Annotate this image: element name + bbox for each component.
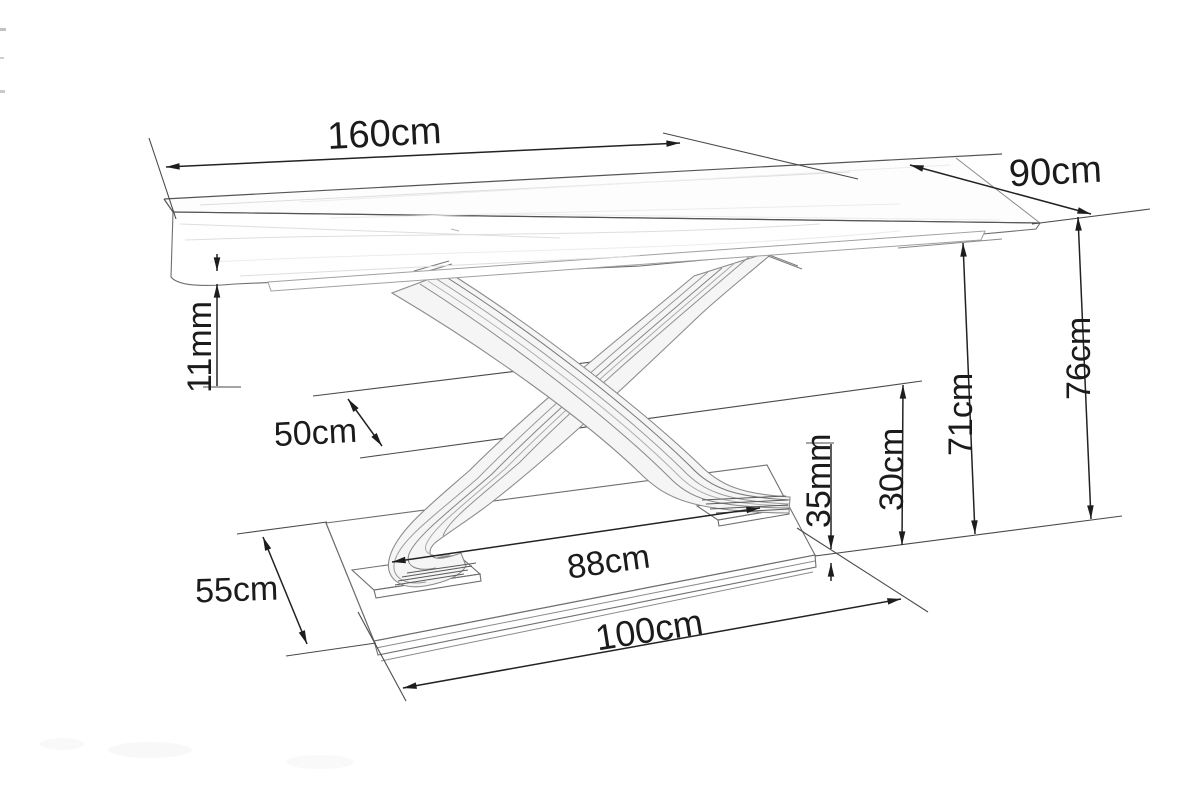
dim-lower-clearance-label: 30cm <box>873 428 911 511</box>
table-dimension-diagram: 160cm 90cm 11mm 50cm 76cm 71cm 30cm 35mm… <box>0 0 1200 797</box>
dim-top-width-label: 90cm <box>1008 149 1103 196</box>
sub-top-leaf <box>268 231 985 291</box>
dim-height-total-label: 76cm <box>1060 317 1098 400</box>
dim-base-depth-label: 55cm <box>194 570 278 611</box>
dim-plate-thickness-label: 35mm <box>800 434 838 528</box>
pedestal-ribbon-right <box>392 272 790 513</box>
diagram-canvas: 160cm 90cm 11mm 50cm 76cm 71cm 30cm 35mm… <box>0 0 1200 797</box>
dim-mid-clearance-label: 50cm <box>273 412 358 454</box>
dim-height-under-label: 71cm <box>942 373 980 456</box>
dim-base-length-label: 100cm <box>592 601 705 658</box>
dim-feet-span-label: 88cm <box>565 538 653 587</box>
dim-top-thickness-label: 11mm <box>181 301 219 393</box>
tabletop <box>164 154 1040 291</box>
dim-top-length-label: 160cm <box>326 110 442 158</box>
scan-artifacts <box>0 28 354 769</box>
